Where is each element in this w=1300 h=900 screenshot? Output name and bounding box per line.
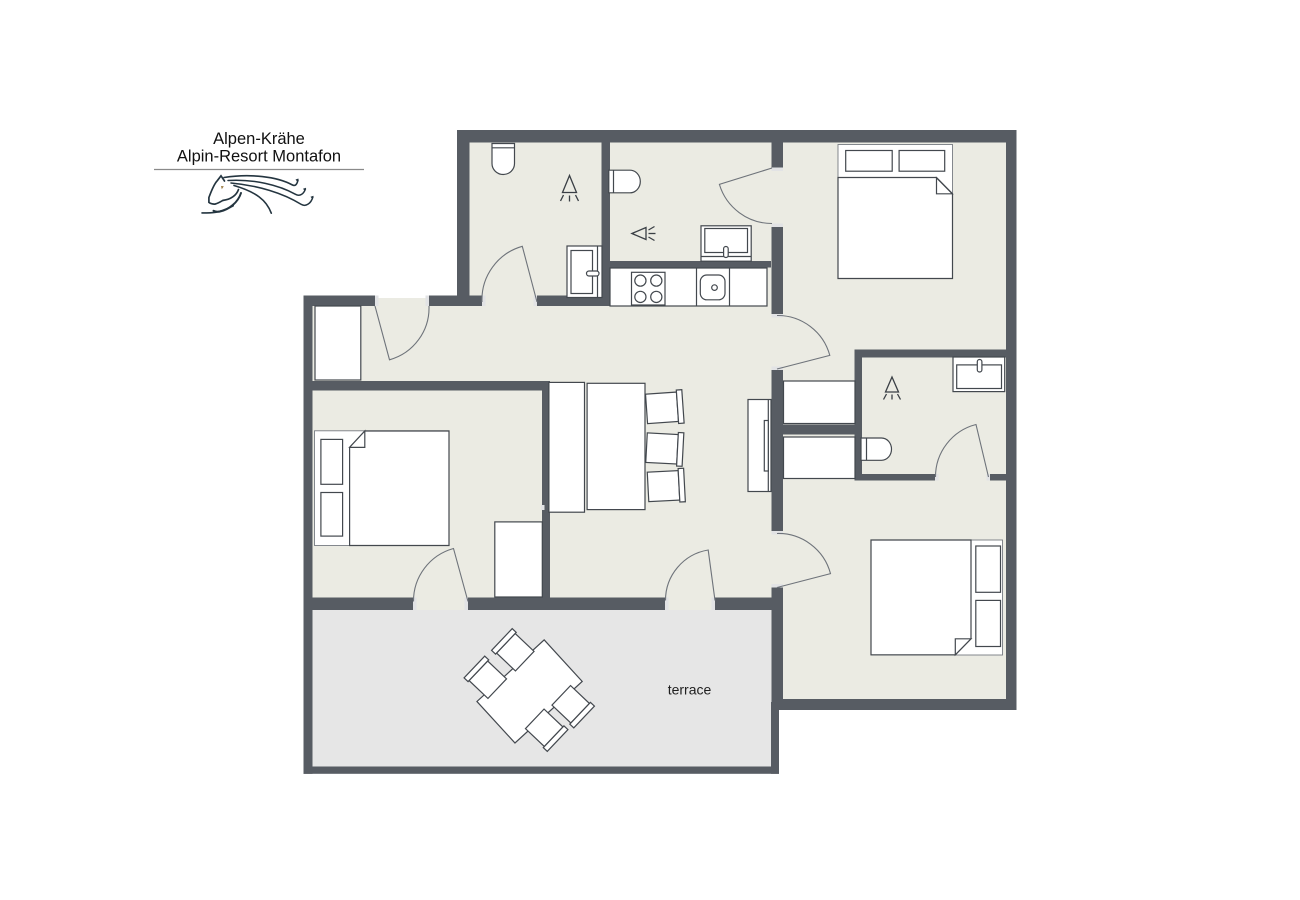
svg-text:terrace: terrace [668, 682, 712, 698]
svg-text:Alpen-Krähe: Alpen-Krähe [213, 130, 305, 148]
svg-text:Alpin-Resort Montafon: Alpin-Resort Montafon [177, 148, 341, 166]
